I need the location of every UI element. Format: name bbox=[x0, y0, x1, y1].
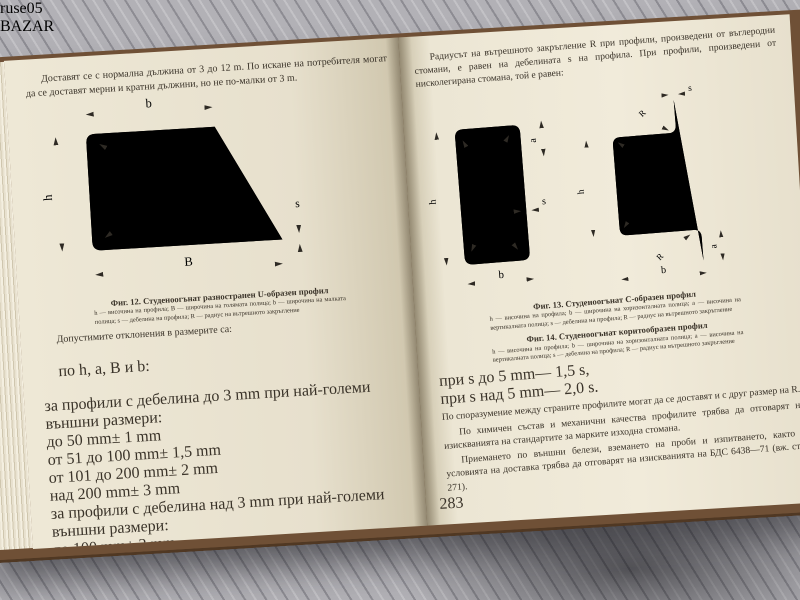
dim-label-s: s bbox=[295, 197, 301, 210]
tolerance-col-under-3mm: за профили с дебелина до 3 mm при най-го… bbox=[44, 376, 412, 505]
right-page: Радиусът на вътрешното закръгление R при… bbox=[398, 14, 800, 525]
dim-label-b: b bbox=[145, 96, 152, 110]
figure-12-drawing: b h B s R bbox=[27, 89, 316, 295]
dim-label-R: R bbox=[481, 168, 489, 179]
dim-label-B: B bbox=[184, 254, 193, 268]
open-pages: Доставят се с нормална дължина от 3 до 1… bbox=[4, 14, 800, 549]
bazar-logo-text: BAZAR bbox=[0, 18, 54, 35]
figure-14-drawing: s h a b R bbox=[558, 82, 733, 291]
dim-label-h: h bbox=[576, 188, 586, 194]
dim-label-R: R bbox=[484, 209, 492, 220]
figure-13-drawing: a h s b bbox=[416, 85, 570, 300]
photo: Доставят се с нормална дължина от 3 до 1… bbox=[0, 0, 800, 600]
figure-12: b h B s R bbox=[27, 84, 402, 330]
dim-label-s: s bbox=[541, 196, 546, 207]
book: Доставят се с нормална дължина от 3 до 1… bbox=[0, 9, 800, 563]
dim-label-s: s bbox=[687, 83, 692, 93]
dim-label-a: a bbox=[709, 243, 719, 249]
tolerance-subheading: по h, a, B и b: bbox=[42, 342, 405, 381]
figures-13-14: a h s b bbox=[416, 67, 794, 307]
dim-label-b: b bbox=[497, 269, 504, 281]
tolerance-columns: за профили с дебелина до 3 mm при най-го… bbox=[44, 376, 418, 549]
watermark-username: ruse05 bbox=[0, 0, 800, 18]
dim-label-R: R bbox=[636, 107, 647, 118]
dim-label-h: h bbox=[41, 193, 55, 201]
dim-label-h: h bbox=[427, 199, 438, 205]
dim-label-b: b bbox=[660, 265, 666, 276]
dim-label-R: R bbox=[654, 251, 665, 262]
dim-label-a: a bbox=[527, 137, 538, 143]
left-page: Доставят се с нормална дължина от 3 до 1… bbox=[4, 37, 427, 549]
